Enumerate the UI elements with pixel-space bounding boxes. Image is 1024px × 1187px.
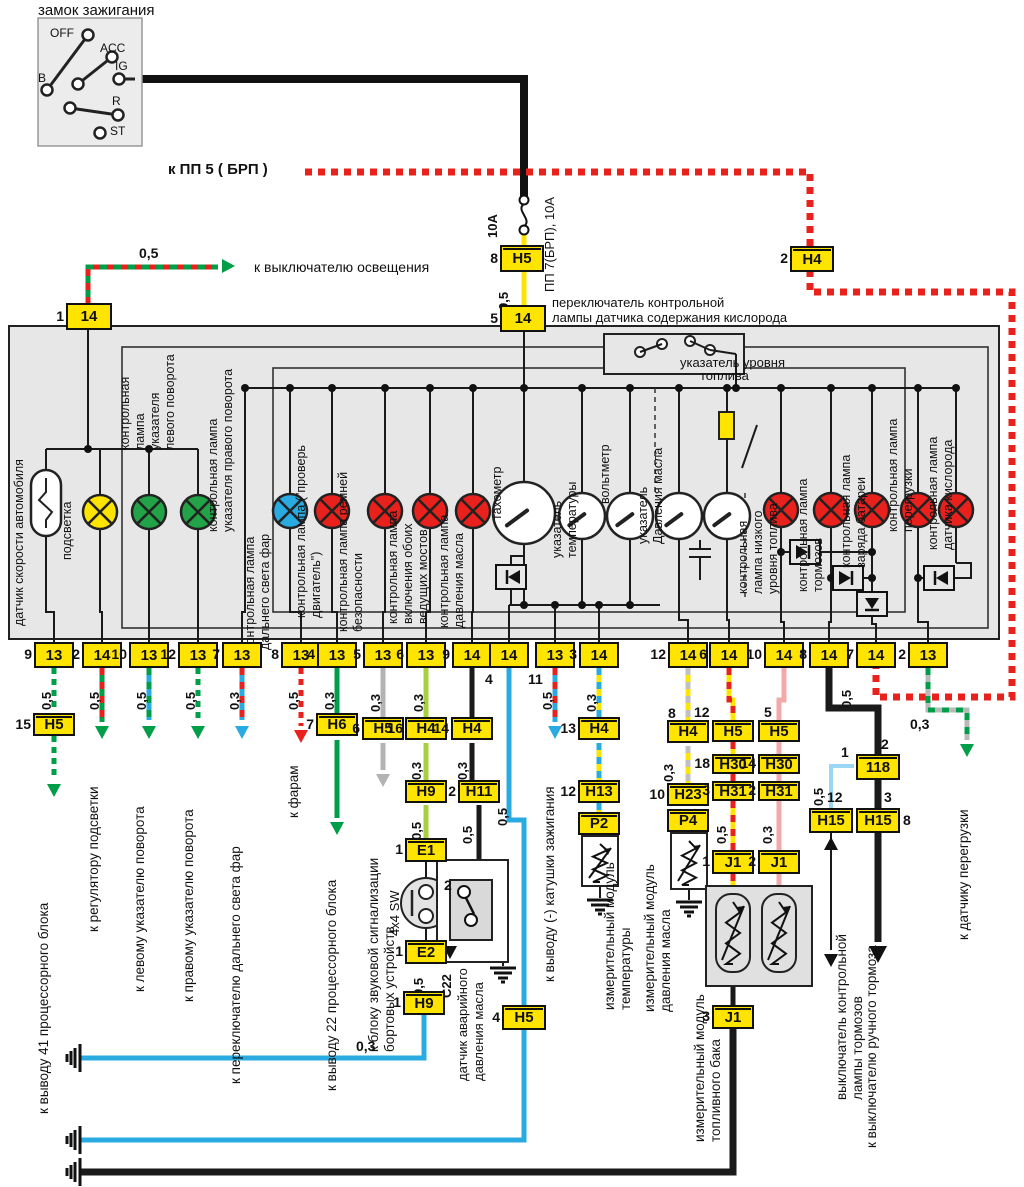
dest-left-turn-label: к левому указателю поворота: [132, 740, 147, 992]
connector-label: H4: [462, 720, 481, 737]
pin-number: 3: [560, 646, 577, 662]
dest-highbeam-switch-label: к переключателю дальнего света фар: [228, 736, 243, 1084]
connector-label: H5: [723, 723, 742, 740]
low-fuel-label-line: лампа низкого: [751, 362, 765, 594]
text-label: ACC: [100, 41, 125, 55]
connector-label: 13: [418, 647, 435, 664]
left-turn-lamp: [132, 495, 166, 529]
dest-overload-sensor-label-line: к датчику перегрузки: [956, 758, 971, 940]
pin-number: 3: [884, 789, 892, 805]
connector-14-pin1: 14: [66, 303, 112, 330]
text-label: OFF: [50, 26, 74, 40]
connector-h9-pin1: H9: [403, 991, 445, 1015]
ignition-terminal: [42, 85, 53, 96]
dest-handbrake-label-line: к выключателю ручного тормоза: [864, 960, 879, 1148]
tachometer-label-line: тахометр: [490, 392, 504, 520]
pin-number: 1: [693, 853, 710, 869]
pin-number: 14: [739, 755, 756, 771]
oil-switch-label: датчик аварийногодавления масла: [456, 943, 486, 1081]
pin-number: 2: [739, 782, 756, 798]
left-turn-label-line: лампа: [133, 332, 147, 450]
high-beam-label-line: дальнего света фар: [258, 438, 272, 650]
connector-label: E1: [417, 842, 435, 859]
wire: [679, 539, 688, 642]
oil-lamp-label-line: давления масла: [452, 384, 466, 628]
illumination-lamp: [83, 495, 117, 529]
wire: [829, 578, 831, 642]
connector-label: H15: [817, 812, 845, 829]
pin-number: 10: [110, 646, 127, 662]
wire-dash: [928, 668, 967, 740]
connector-label: J1: [771, 854, 788, 871]
overload-lamp-label-line: контрольная лампа: [886, 366, 900, 532]
ignition-terminal: [73, 79, 84, 90]
connector-h4-pin14: H4: [451, 717, 493, 740]
connector-h5-pin15: H5: [33, 713, 75, 736]
oxygen-lamp-label: контрольная лампадатчика кислорода: [926, 338, 955, 550]
junction-dot: [595, 601, 603, 609]
connector-h4: H4: [667, 720, 709, 743]
dest-chime-label-line: к блоку звуковой сигнализации: [366, 790, 381, 1052]
ignition-terminal: [113, 110, 124, 121]
wire-size-label-line: 0,3: [412, 676, 427, 712]
brake-lamp-label-line: контрольная лампа: [796, 366, 810, 592]
wire-size-label: 0,5: [541, 674, 556, 710]
oil-switch-contact: [465, 914, 477, 926]
connector-h15: H15: [809, 808, 853, 833]
oil-switch-label-line: датчик аварийного: [456, 943, 471, 1081]
junction-dot: [868, 574, 876, 582]
text-label: IG: [115, 59, 128, 73]
connector-label: 14: [501, 647, 518, 664]
dest-coil-label-line: к выводу (-) катушки зажигания: [542, 740, 557, 982]
wire: [88, 267, 218, 304]
junction-dot: [868, 548, 876, 556]
pin-number: 4: [485, 671, 493, 687]
connector-label: H4: [589, 720, 608, 737]
wire-arrow: [824, 837, 838, 850]
ground-symbol: [67, 1126, 80, 1154]
junction-dot: [626, 384, 634, 392]
right-turn-label: контрольная лампауказателя правого повор…: [206, 332, 235, 532]
text-label: замок зажигания: [38, 2, 155, 19]
ground-symbol: [67, 1158, 80, 1186]
4x4-contact: [419, 909, 433, 923]
pin-number: 5: [344, 646, 361, 662]
wire-size-label: 0,3: [662, 746, 677, 782]
connector-label: H30: [765, 756, 793, 773]
pin-number: 6: [690, 646, 707, 662]
wire-arrow: [960, 744, 974, 757]
high-beam-label-line: контрольная лампа: [243, 438, 257, 650]
4wd-label-line: ведущих мостов: [416, 384, 430, 624]
wire-size-label: 0,3: [412, 676, 427, 712]
wire-size-label-line: 0,3: [323, 674, 338, 710]
fuel-module-box: [706, 886, 812, 986]
connector-h4-pin13: H4: [578, 717, 620, 740]
connector-label: 118: [866, 759, 890, 776]
pin-number: 1: [386, 943, 403, 959]
wire: [779, 668, 784, 720]
4wd-label-line: включения обоих: [401, 384, 415, 624]
junction-dot: [723, 384, 731, 392]
pin-number: 18: [693, 755, 710, 771]
charge-lamp-label-line: заряда батареи: [854, 366, 868, 568]
ignition-terminal: [65, 103, 76, 114]
brake-lamp-label-line: тормозов: [811, 366, 825, 592]
pin-number: 12: [559, 783, 576, 799]
ground-symbol: [490, 968, 516, 982]
connector-h5: H5: [758, 720, 800, 742]
oil-lamp-label-line: контрольная лампа: [437, 384, 451, 628]
connector-14-pin6: 14: [709, 642, 749, 668]
dest-right-turn-label-line: к правому указателю поворота: [181, 740, 196, 1002]
fuse-terminal: [520, 196, 529, 205]
pin-number: 2: [889, 646, 906, 662]
wire-size-label-line: 0,5: [287, 674, 302, 710]
text-label: к выключателю освещения: [254, 259, 429, 275]
pin-number: 7: [203, 646, 220, 662]
connector-h30-pin14: H30: [758, 754, 800, 774]
pin-number: 6: [387, 646, 404, 662]
connector-e2-pin1: E2: [405, 940, 447, 964]
pin-number: 12: [159, 646, 176, 662]
pin-number: 6: [343, 720, 360, 736]
wire-arrow: [191, 726, 205, 739]
ground-symbol: [67, 1044, 80, 1072]
wire-size-label: 0,5: [184, 674, 199, 710]
wire-size-label-line: 0,3: [410, 744, 425, 780]
wire-arrow: [142, 726, 156, 739]
connector-h31-pin2: H31: [758, 781, 800, 801]
oil-switch-contact: [458, 886, 470, 898]
pin-number: 9: [433, 646, 450, 662]
temp-module-label: измерительный модультемпературы: [602, 738, 633, 1010]
wire-dash: [88, 267, 218, 304]
charge-lamp-label: контрольная лампазаряда батареи: [839, 366, 868, 568]
text-label: лампы датчика содержания кислорода: [552, 310, 787, 325]
pin-number: 9: [15, 646, 32, 662]
connector-label: 13: [46, 647, 63, 664]
junction-dot: [328, 384, 336, 392]
pin-number: 12: [694, 704, 710, 720]
fuse-circuit-label: ПП 7(БРП), 10А: [543, 186, 558, 292]
dest-dimmer-label: к регулятору подсветки: [86, 740, 101, 932]
pin-number: 2: [739, 853, 756, 869]
pin-number: 1: [384, 994, 401, 1010]
wire-arrow: [95, 726, 109, 739]
wire: [727, 539, 729, 642]
seat-belt-label-line: безопасности: [351, 384, 365, 632]
oxygen-lamp-label-line: датчика кислорода: [941, 338, 955, 550]
connector-label: 13: [141, 647, 158, 664]
text-label: переключатель контрольной: [552, 295, 724, 310]
oil-gauge-label: указательДавления масла: [636, 392, 665, 544]
wire-size-label: 0,3: [585, 676, 600, 712]
pin-number: 2: [444, 877, 452, 893]
4x4-switch-label: 4x4 SW: [388, 872, 403, 936]
connector-e1-pin1: E1: [405, 838, 447, 862]
dest-terminal41-label-line: к выводу 41 процессорного блока: [36, 846, 51, 1114]
connector-label: 13: [234, 647, 251, 664]
dest-terminal41-label: к выводу 41 процессорного блока: [36, 846, 51, 1114]
connector-label: H4: [678, 723, 697, 740]
fuse-rating-label-line: 10А: [486, 192, 501, 238]
pin-number: 3: [693, 782, 710, 798]
wire-size-label: 0,3: [323, 674, 338, 710]
wire: [135, 79, 524, 196]
wire-size-label: 0,5: [410, 804, 425, 840]
connector-label: 14: [515, 310, 532, 327]
dest-overload-sensor-label: к датчику перегрузки: [956, 758, 971, 940]
connector-118: 118: [856, 754, 900, 780]
temp-gauge-label-line: температуры: [565, 396, 579, 558]
dest-headlamps-label-line: к фарам: [286, 740, 301, 818]
connector-label: J1: [725, 1009, 742, 1026]
pin-number: 5: [764, 704, 772, 720]
connector-h11-pin2: H11: [458, 780, 500, 803]
left-turn-label-line: контрольная: [118, 332, 132, 450]
connector-13-pin2: 13: [908, 642, 948, 668]
4wd-label: контрольная лампавключения обоихведущих …: [386, 384, 430, 624]
connector-label: H4: [802, 251, 821, 268]
speed-sensor-label: датчик скорости автомобиля: [12, 392, 26, 626]
right-turn-label-line: контрольная лампа: [206, 332, 220, 532]
pin-number: 10: [745, 646, 762, 662]
connector-label: H31: [765, 783, 793, 800]
text-label: к ПП 5 ( БРП ): [168, 161, 268, 178]
text-label: R: [112, 94, 121, 108]
connector-14-pin9: 14: [452, 642, 492, 668]
speed-sensor-label-line: датчик скорости автомобиля: [12, 392, 26, 626]
junction-dot: [520, 384, 528, 392]
oil-module-label-line: измерительный модуль: [642, 722, 657, 1012]
ground-symbol: [676, 902, 702, 916]
junction-dot: [578, 601, 586, 609]
ignition-terminal: [95, 128, 106, 139]
wire-size-label-line: 0,5: [461, 808, 476, 844]
text-label: 0,5: [139, 245, 158, 261]
connector-label: E2: [417, 944, 435, 961]
connector-label: 14: [591, 647, 608, 664]
fuse-circuit-label-line: ПП 7(БРП), 10А: [543, 186, 558, 292]
temp-gauge-label-line: указатель: [550, 396, 564, 558]
pin-number: 8: [790, 646, 807, 662]
4wd-label-line: контрольная лампа: [386, 384, 400, 624]
fuse-rating-label: 10А: [486, 192, 501, 238]
brake-switch-label-line: лампы тормозов: [850, 862, 865, 1100]
pin-number: 13: [559, 720, 576, 736]
wire-size-label-line: 0,3: [228, 674, 243, 710]
wiring-diagram: 141H58145H421391421310131213713813413513…: [0, 0, 1024, 1187]
connector-label: 14: [94, 647, 111, 664]
4x4-switch-label-line: 4x4 SW: [388, 872, 403, 936]
wire-size-label: 0,3: [369, 676, 384, 712]
dest-coil-label: к выводу (-) катушки зажигания: [542, 740, 557, 982]
wire: [509, 668, 524, 1005]
junction-dot: [520, 601, 528, 609]
illumination-label-line: подсветка: [60, 460, 74, 560]
brake-switch-label: выключатель контрольнойлампы тормозов: [834, 862, 865, 1100]
text-label: B: [38, 71, 46, 85]
overload-lamp-label: контрольная лампаперегрузки: [886, 366, 915, 532]
wire-size-label-line: 0,5: [40, 674, 55, 710]
dest-right-turn-label: к правому указателю поворота: [181, 740, 196, 1002]
voltmeter-label: вольтметр: [598, 392, 612, 504]
pin-number: 1: [47, 308, 64, 324]
connector-label: H5: [512, 250, 531, 267]
temp-module-label-line: измерительный модуль: [602, 738, 617, 1010]
junction-dot: [868, 384, 876, 392]
oil-lamp-label: контрольная лампадавления масла: [437, 384, 466, 628]
dest-terminal22-label: к выводу 22 процессорного блока: [324, 843, 339, 1091]
fuel-gauge-resistor: [719, 412, 734, 439]
temp-module-label-line: температуры: [618, 738, 633, 1010]
pin-number: 16: [386, 720, 403, 736]
connector-label: H15: [864, 812, 892, 829]
wire-size-label: 0,5: [88, 674, 103, 710]
wire-size-label-line: 0,5: [135, 674, 150, 710]
pin-number: 5: [481, 310, 498, 326]
check-engine-label-line: двигатель"): [309, 366, 323, 618]
connector-h5: H5: [712, 720, 754, 742]
pin-number: 1: [841, 744, 849, 760]
wire-size-label: 0,5: [461, 808, 476, 844]
connector-label: H9: [416, 783, 435, 800]
pin-number: 8: [668, 705, 676, 721]
connector-label: H13: [585, 783, 613, 800]
wire-size-label-line: 0,5: [812, 770, 827, 806]
junction-dot: [914, 384, 922, 392]
wire-arrow: [330, 822, 344, 835]
connector-14-pin5: 14: [500, 305, 546, 332]
voltmeter-label-line: вольтметр: [598, 392, 612, 504]
pin-number: 11: [528, 671, 543, 687]
text-label: ST: [110, 124, 125, 138]
junction-dot: [578, 384, 586, 392]
pin-number: 8: [903, 812, 911, 828]
connector-14: 14: [489, 642, 529, 668]
wire-size-label-line: 0,5: [715, 808, 730, 844]
wire-size-label-line: 0,5: [184, 674, 199, 710]
wire-size-label: 0,3: [456, 744, 471, 780]
low-fuel-label-line: уровня топлива: [766, 362, 780, 594]
diode-symbol: [924, 566, 954, 590]
wire-size-label-line: 0,5: [88, 674, 103, 710]
junction-dot: [84, 445, 92, 453]
dest-left-turn-label-line: к левому указателю поворота: [132, 740, 147, 992]
pin-number: 2: [881, 736, 889, 752]
pin-number: 15: [14, 716, 31, 732]
pin-number: 4: [483, 1009, 500, 1025]
pin-number: 2: [771, 250, 788, 266]
high-beam-label: контрольная лампадальнего света фар: [243, 438, 272, 650]
tachometer-label: тахометр: [490, 392, 504, 520]
wire: [872, 616, 876, 642]
wire-arrow: [222, 259, 235, 273]
dest-highbeam-switch-label-line: к переключателю дальнего света фар: [228, 736, 243, 1084]
pin-number: 2: [63, 646, 80, 662]
connector-h5-pin8: H5: [500, 245, 544, 272]
wire-size-label-line: 0,5: [541, 674, 556, 710]
connector-label: H5: [769, 723, 788, 740]
pin-number: 12: [827, 789, 843, 805]
connector-h4-pin2: H4: [790, 246, 834, 272]
wire-size-label: 0,5: [40, 674, 55, 710]
pin-number: 4: [298, 646, 315, 662]
junction-dot: [551, 601, 559, 609]
pin-number: 10: [648, 786, 665, 802]
wire-size-label: 0,5: [812, 770, 827, 806]
wire-size-label: 0,3: [410, 744, 425, 780]
wire-size-label: 0,3: [761, 808, 776, 844]
junction-dot: [914, 574, 922, 582]
diode-symbol: [833, 566, 863, 590]
connector-h13-pin12: H13: [578, 780, 620, 803]
junction-dot: [675, 384, 683, 392]
pin-number: 3: [693, 1008, 710, 1024]
wire-size-label: 0,5: [287, 674, 302, 710]
wire: [928, 668, 967, 740]
connector-p4: P4: [667, 809, 709, 832]
right-turn-label-line: указателя правого поворота: [221, 332, 235, 532]
connector-14-pin3: 14: [579, 642, 619, 668]
wire-size-label-line: 0,3: [662, 746, 677, 782]
oil-gauge-label-line: Давления масла: [651, 392, 665, 544]
fuse-element: [521, 204, 526, 226]
dest-handbrake-label: к выключателю ручного тормоза: [864, 960, 879, 1148]
connector-p2: P2: [578, 812, 620, 835]
connector-h5-pin4: H5: [502, 1005, 546, 1030]
illumination-label: подсветка: [60, 460, 74, 560]
wire: [383, 528, 385, 642]
connector-label: 14: [868, 647, 885, 664]
diode-symbol: [496, 565, 526, 589]
wire-arrow: [47, 784, 61, 797]
check-engine-label: контрольная лампа ("проверьдвигатель"): [294, 366, 323, 618]
left-turn-label-line: левого поворота: [163, 332, 177, 450]
wire: [46, 536, 54, 642]
wire-size-label: 0,5: [135, 674, 150, 710]
pin-number: 2: [439, 783, 456, 799]
ignition-terminal: [83, 30, 94, 41]
junction-dot: [469, 384, 477, 392]
pin-number: 8: [262, 646, 279, 662]
left-turn-label-line: указателя: [148, 332, 162, 450]
connector-j1-pin2: J1: [758, 850, 800, 874]
junction-dot: [241, 384, 249, 392]
seat-belt-label: контрольная лампа ремнейбезопасности: [336, 384, 365, 632]
pin-number: 7: [837, 646, 854, 662]
brake-switch-label-line: выключатель контрольной: [834, 862, 849, 1100]
connector-label: 14: [821, 647, 838, 664]
overload-lamp-label-line: перегрузки: [901, 366, 915, 532]
pin-number: 12: [649, 646, 666, 662]
temp-gauge-label: указательтемпературы: [550, 396, 579, 558]
pin-number: 8: [481, 250, 498, 266]
connector-label: 13: [329, 647, 346, 664]
connector-j1-pin3: J1: [712, 1005, 754, 1029]
brake-lamp-label: контрольная лампатормозов: [796, 366, 825, 592]
connector-label: H5: [44, 716, 63, 733]
4x4-contact: [419, 885, 433, 899]
wire: [472, 528, 473, 642]
junction-dot: [286, 384, 294, 392]
charge-lamp-label-line: контрольная лампа: [839, 366, 853, 568]
connector-13-pin7: 13: [222, 642, 262, 668]
connector-label: 14: [464, 647, 481, 664]
left-turn-label: контрольнаялампауказателялевого поворота: [118, 332, 177, 450]
